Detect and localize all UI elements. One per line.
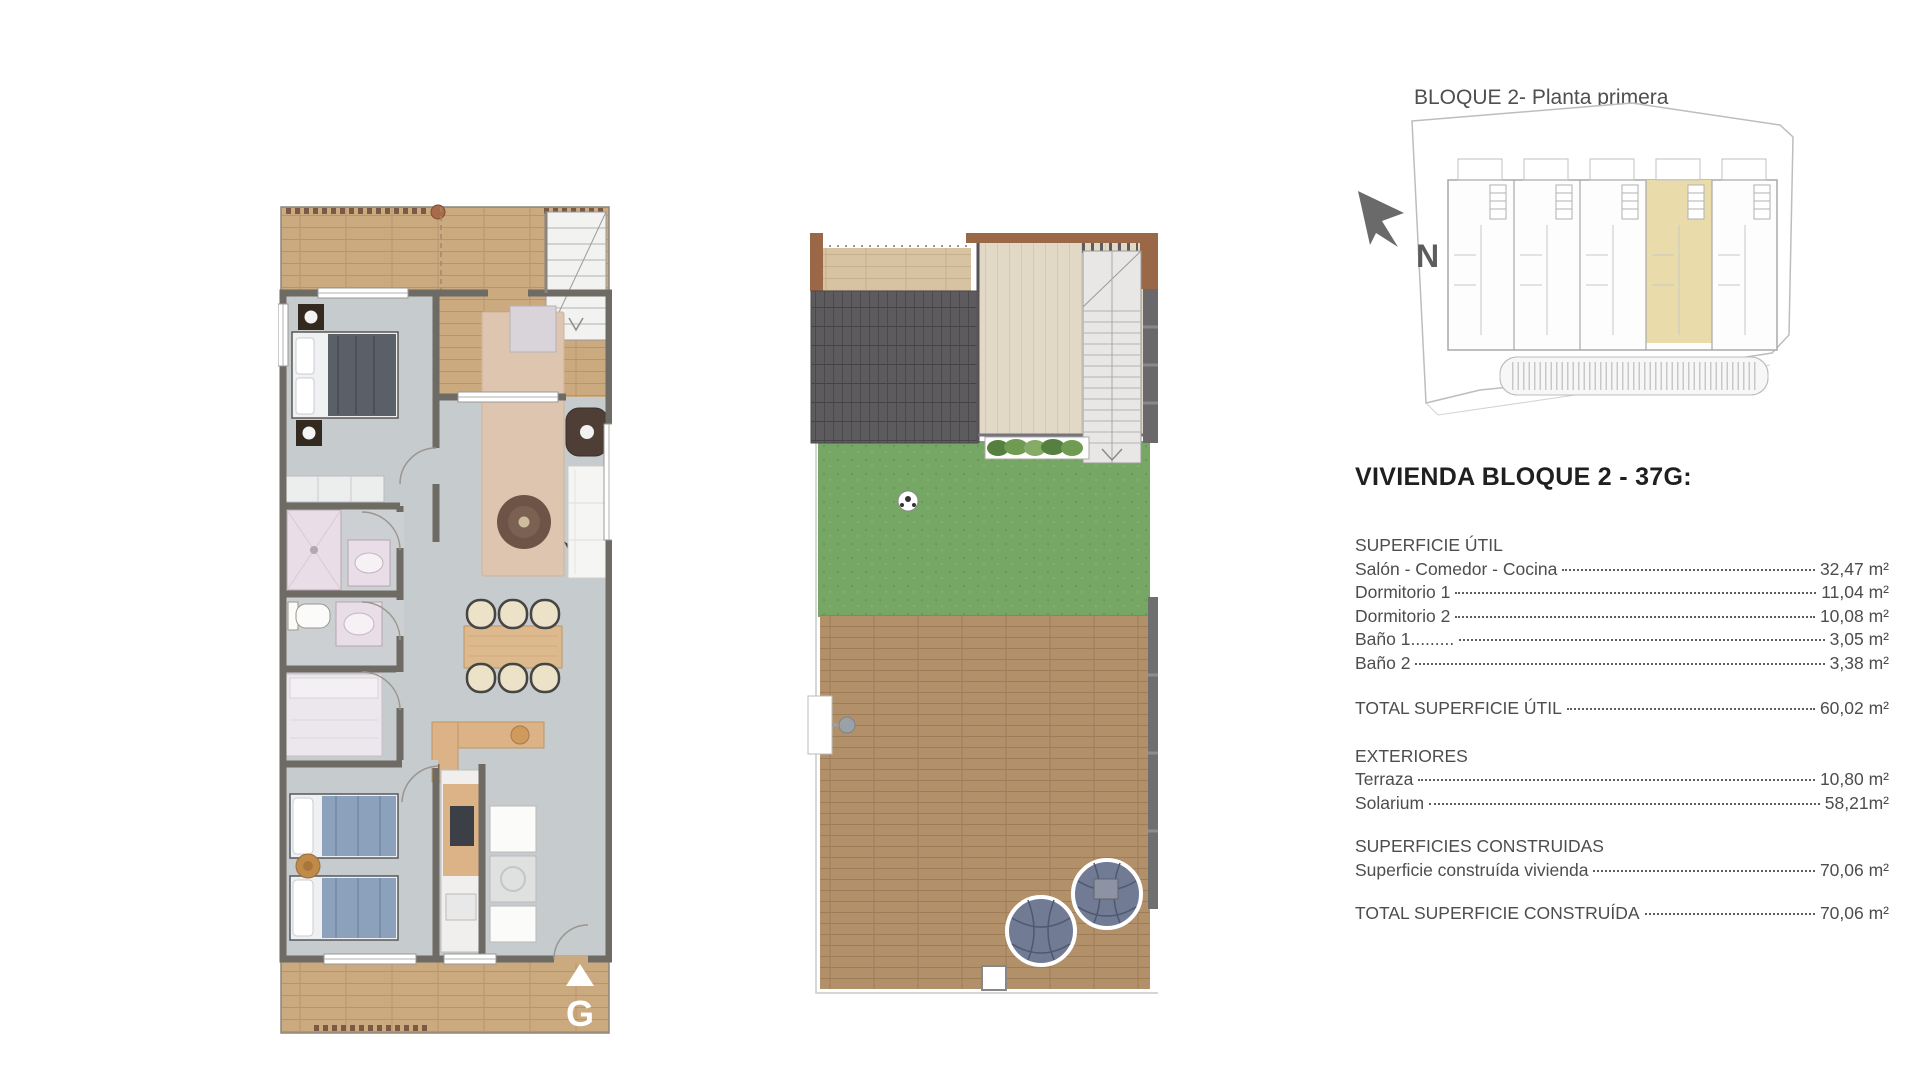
chair-icon	[499, 600, 527, 628]
planter	[985, 437, 1089, 459]
area-row: Dormitorio 210,08 m²	[1355, 605, 1889, 629]
cooktop-icon	[450, 806, 474, 846]
unit-title: VIVIENDA BLOQUE 2 - 37G:	[1355, 463, 1889, 492]
section-heading: EXTERIORES	[1355, 745, 1889, 769]
wardrobe-icon	[286, 476, 384, 502]
dot-leader	[1429, 803, 1820, 805]
fence-post-icon	[431, 205, 445, 219]
building-block	[1448, 159, 1777, 350]
appliance-icon	[490, 856, 536, 902]
section-exteriores: EXTERIORES Terraza 10,80 m² Solarium58,2…	[1355, 745, 1889, 816]
dining-table-icon	[464, 626, 562, 668]
chair-icon	[531, 600, 559, 628]
chair-icon	[499, 664, 527, 692]
football-icon	[898, 491, 918, 511]
north-label: N	[1416, 238, 1439, 274]
chair-icon	[467, 664, 495, 692]
dot-leader	[1418, 779, 1815, 781]
hatch	[982, 966, 1006, 990]
upper-deck	[813, 248, 971, 291]
wood-deck	[820, 615, 1150, 989]
section-heading: SUPERFICIES CONSTRUIDAS	[1355, 835, 1889, 859]
chair-icon	[467, 600, 495, 628]
dot-leader	[1455, 592, 1816, 594]
bean-bag-icon	[1073, 860, 1141, 928]
chair-icon	[531, 664, 559, 692]
stool-icon	[511, 726, 529, 744]
dot-leader	[1459, 639, 1824, 641]
stairs-icon	[1083, 251, 1141, 463]
area-row: Baño 2 3,38 m²	[1355, 652, 1889, 676]
pergola-post	[1140, 233, 1158, 289]
pergola-beam	[966, 233, 1158, 243]
appliance-icon	[490, 906, 536, 942]
section-heading: SUPERFICIE ÚTIL	[1355, 534, 1889, 558]
walkway	[1500, 357, 1768, 395]
floorplan-sheet: G	[0, 0, 1920, 1080]
dot-leader	[1562, 569, 1815, 571]
tiled-roof	[811, 291, 978, 443]
dot-leader	[1593, 870, 1814, 872]
appliance-icon	[490, 806, 536, 852]
dot-leader	[1415, 663, 1824, 665]
table-icon	[510, 306, 556, 352]
area-row: Superficie construída vivienda 70,06 m²	[1355, 859, 1889, 883]
site-plan: N	[1330, 85, 1910, 435]
unit-details-panel: VIVIENDA BLOQUE 2 - 37G: SUPERFICIE ÚTIL…	[1355, 463, 1889, 926]
dot-leader	[1567, 708, 1815, 710]
area-row: Terraza 10,80 m²	[1355, 768, 1889, 792]
area-row: Salón - Comedor - Cocina32,47 m²	[1355, 558, 1889, 582]
area-row: Solarium58,21m²	[1355, 792, 1889, 816]
section-superficie-util: SUPERFICIE ÚTIL Salón - Comedor - Cocina…	[1355, 534, 1889, 675]
sink-icon	[446, 894, 476, 920]
area-row: Dormitorio 1 11,04 m²	[1355, 581, 1889, 605]
compass-arrow-icon	[1358, 191, 1404, 247]
pergola-post	[810, 233, 823, 291]
total-construida-row: TOTAL SUPERFICIE CONSTRUÍDA 70,06 m²	[1355, 902, 1889, 926]
sofa-icon	[568, 466, 609, 578]
area-row: Baño 1......... 3,05 m²	[1355, 628, 1889, 652]
bean-bag-icon	[1007, 897, 1075, 965]
hall-wardrobe	[286, 674, 382, 756]
apartment-floorplan: G	[278, 204, 612, 1040]
orientation-letter: G	[566, 993, 594, 1034]
total-util-row: TOTAL SUPERFICIE ÚTIL 60,02 m²	[1355, 697, 1889, 721]
lawn	[818, 441, 1150, 617]
solarium-floorplan	[806, 231, 1162, 1007]
dot-leader	[1455, 616, 1815, 618]
section-construidas: SUPERFICIES CONSTRUIDAS Superficie const…	[1355, 835, 1889, 882]
dot-leader	[1645, 913, 1815, 915]
